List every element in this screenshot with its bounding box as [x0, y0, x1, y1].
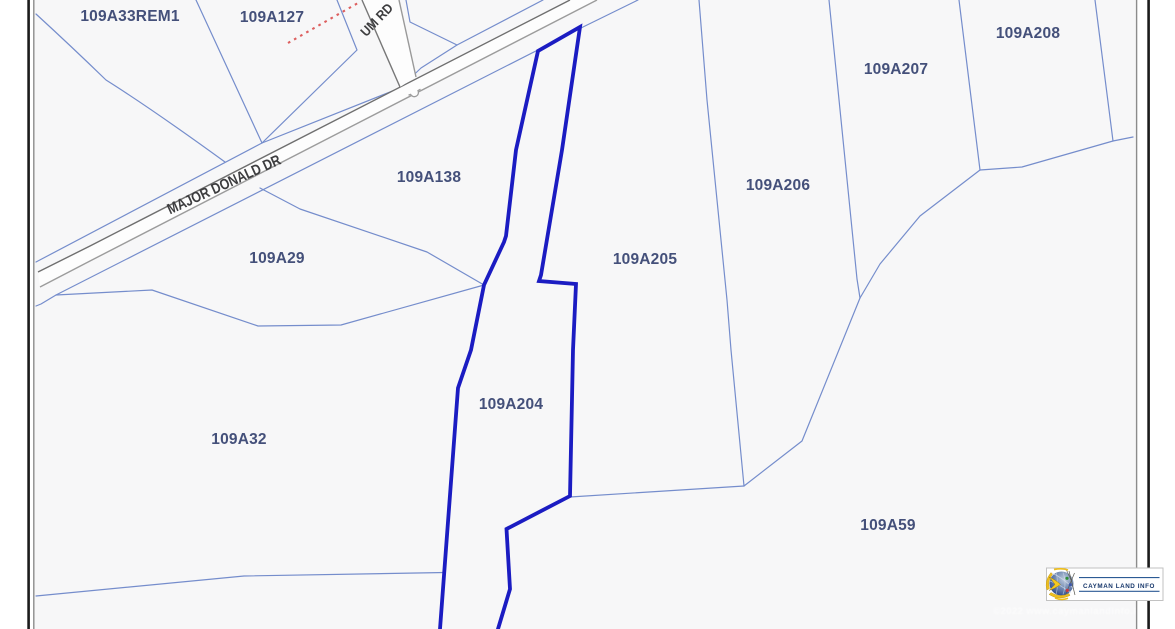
svg-text:109A206: 109A206 [746, 177, 810, 194]
svg-text:109A33REM1: 109A33REM1 [80, 8, 180, 25]
svg-text:CAYMAN LAND INFO: CAYMAN LAND INFO [1083, 583, 1155, 590]
svg-text:109A207: 109A207 [864, 61, 928, 78]
svg-text:109A29: 109A29 [249, 250, 305, 267]
svg-text:109A138: 109A138 [397, 169, 461, 186]
svg-text:©2022 www.caymanlandinfo.ky: ©2022 www.caymanlandinfo.ky [993, 606, 1145, 617]
svg-text:109A127: 109A127 [240, 9, 304, 26]
svg-text:109A204: 109A204 [479, 396, 543, 413]
svg-text:109A59: 109A59 [860, 517, 916, 534]
svg-text:109A208: 109A208 [996, 25, 1060, 42]
svg-text:109A32: 109A32 [211, 431, 267, 448]
svg-text:109A205: 109A205 [613, 251, 677, 268]
